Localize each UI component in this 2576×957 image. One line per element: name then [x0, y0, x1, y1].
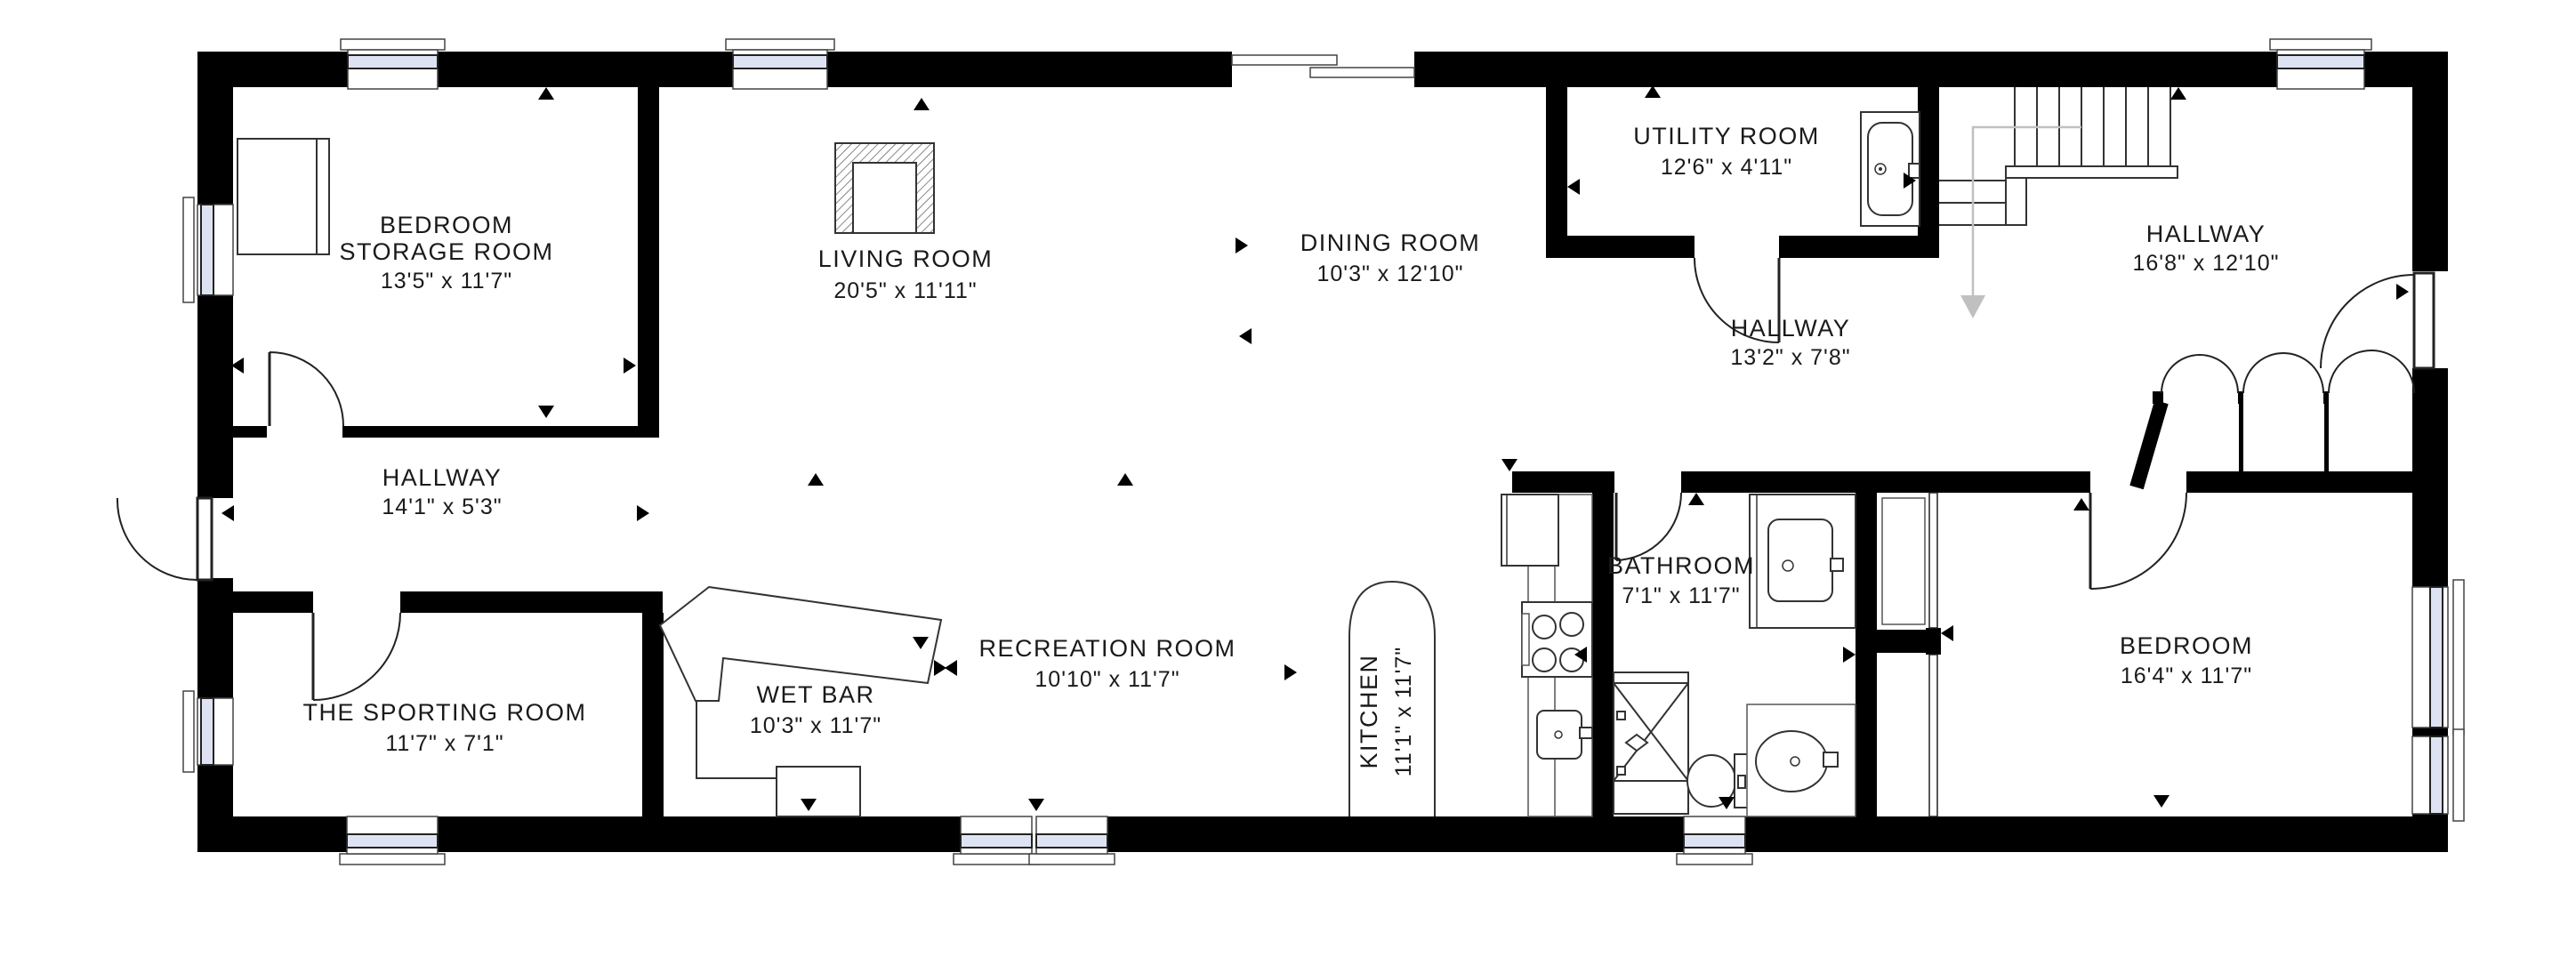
window-hallway-top: [2270, 39, 2371, 89]
window-storage-left: [183, 197, 233, 302]
room-dimensions: 11'7" x 7'1": [385, 731, 503, 756]
room-dimensions: 10'3" x 11'7": [750, 713, 881, 738]
room-dimensions: 7'1" x 11'7": [1622, 583, 1740, 608]
room-dimensions: 13'2" x 7'8": [1730, 345, 1850, 370]
room-label: HALLWAY: [2146, 221, 2266, 247]
room-dimensions: 16'8" x 12'10": [2132, 251, 2279, 276]
window-bathroom-bottom: [1677, 816, 1752, 865]
room-dimensions: 20'5" x 11'11": [833, 278, 977, 303]
room-label: KITCHEN: [1356, 654, 1382, 768]
stove: [1522, 602, 1592, 677]
room-label: WET BAR: [756, 681, 874, 708]
room-dimensions: 10'3" x 12'10": [1316, 261, 1463, 286]
room-label: STORAGE ROOM: [339, 238, 553, 265]
room-label: RECREATION ROOM: [978, 635, 1236, 662]
room-label: DINING ROOM: [1300, 229, 1481, 256]
storage-wardrobe: [237, 139, 329, 254]
bathroom-sink: [1747, 704, 1856, 816]
utility-sink: [1861, 112, 1920, 226]
room-label: LIVING ROOM: [818, 245, 994, 272]
linen-closet-shelf: [1882, 498, 1925, 624]
window-sporting-bottom: [340, 816, 445, 865]
room-dimensions: 10'10" x 11'7": [1034, 667, 1179, 692]
room-label: BATHROOM: [1607, 552, 1755, 579]
window-bedroom-right-1: [2412, 580, 2464, 735]
window-sporting-left: [183, 691, 233, 772]
room-label: BEDROOM: [380, 212, 513, 238]
room-dimensions: 12'6" x 4'11": [1661, 155, 1792, 180]
window-living-top: [726, 39, 834, 89]
window-recreation-bottom-1: [954, 816, 1039, 865]
fireplace: [835, 143, 934, 233]
toilet: [1687, 754, 1752, 808]
window-bedroom-right-2: [2412, 729, 2464, 821]
window-recreation-bottom-2: [1029, 816, 1115, 865]
room-dimensions: 13'5" x 11'7": [381, 269, 512, 294]
room-label: HALLWAY: [1731, 315, 1851, 342]
bathroom-vanity: [1750, 495, 1856, 628]
floor-plan: BEDROOMSTORAGE ROOM13'5" x 11'7"LIVING R…: [0, 0, 2576, 957]
window-storage-top: [341, 39, 445, 89]
shower: [1614, 672, 1688, 814]
room-dimensions: 14'1" x 5'3": [382, 495, 502, 519]
room-label: UTILITY ROOM: [1633, 123, 1820, 149]
sliding-door-top: [1232, 52, 1414, 87]
room-dimensions: 11'1" x 11'7": [1391, 647, 1416, 776]
room-label: HALLWAY: [382, 464, 503, 491]
bedroom-partition-wall: [1929, 493, 1937, 816]
room-dimensions: 16'4" x 11'7": [2121, 663, 2252, 688]
room-label: THE SPORTING ROOM: [302, 699, 586, 726]
refrigerator: [1501, 495, 1558, 566]
room-label: BEDROOM: [2120, 632, 2253, 659]
